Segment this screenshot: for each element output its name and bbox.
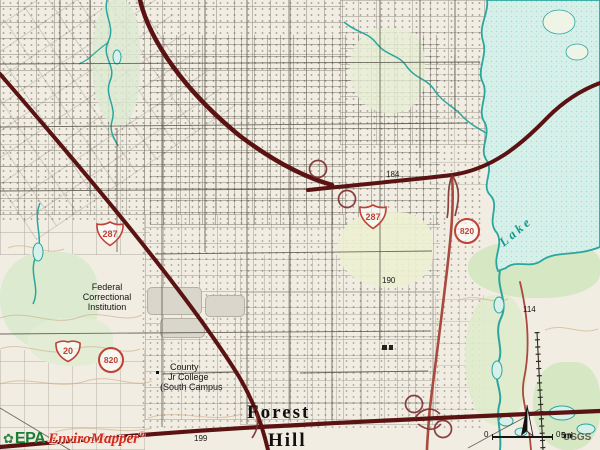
campus-building-block: [147, 287, 202, 315]
pond: [515, 428, 527, 436]
label-city-forest: Forest: [247, 402, 310, 424]
shield-us287-northwest: 287: [95, 220, 125, 247]
registered-mark: ®: [139, 430, 145, 439]
label-elevation-190: 190: [382, 276, 395, 285]
shield-number: 287: [102, 229, 117, 239]
epa-flower-icon: ✿: [3, 431, 14, 447]
scale-unit: 5mi: [561, 431, 572, 440]
topo-map-canvas[interactable]: 287 287 820 20 820 Federal Correctional …: [0, 0, 600, 450]
shield-i20-southwest: 20: [54, 339, 82, 363]
label-city-hill: Hill: [268, 430, 307, 450]
north-arrow-icon: [521, 405, 533, 436]
scale-bar: [492, 436, 553, 438]
shield-number: 287: [365, 212, 380, 222]
enviromapper-logo-text: EnviroMapper®: [48, 430, 145, 448]
shield-i820-center: 820: [454, 218, 480, 244]
green-area: [92, 0, 140, 125]
college-point-marker: [156, 371, 159, 374]
green-area: [540, 0, 600, 78]
label-elevation-184: 184: [386, 170, 399, 179]
label-county-jr-college: County Jr College (South Campus: [160, 362, 223, 392]
label-federal-correctional-institution: Federal Correctional Institution: [62, 282, 152, 312]
scale-zero-left: 0: [484, 430, 488, 439]
epa-logo-text: EPA: [15, 430, 45, 448]
green-area: [350, 28, 425, 113]
shield-us287-center: 287: [358, 203, 388, 230]
shield-number: 820: [460, 226, 474, 236]
campus-building-block: [205, 295, 245, 317]
campus-building-block: [160, 318, 205, 338]
green-area: [468, 240, 600, 298]
shield-i820-southwest: 820: [98, 347, 124, 373]
epa-enviromapper-logo[interactable]: ✿ EPA EnviroMapper®: [3, 429, 145, 449]
label-elevation-199: 199: [194, 434, 207, 443]
scale-bar-tick: [492, 434, 493, 440]
scale-bar-tick: [552, 434, 553, 440]
label-elevation-114: 114: [523, 305, 536, 314]
shield-number: 20: [63, 346, 73, 356]
green-area: [465, 295, 527, 425]
shield-number: 820: [104, 355, 118, 365]
scale-zero-right: 0: [556, 430, 560, 439]
